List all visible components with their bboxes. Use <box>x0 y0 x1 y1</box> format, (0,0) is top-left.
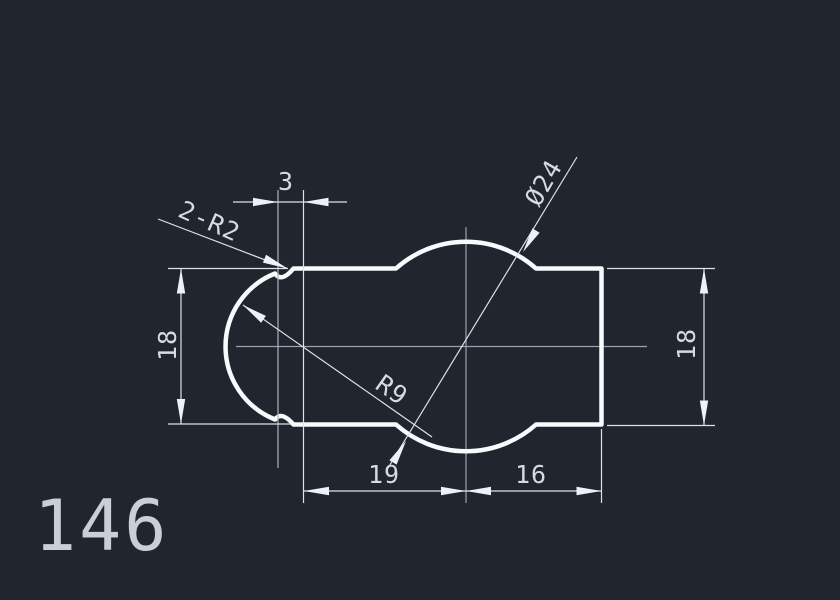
arrowhead <box>389 441 406 465</box>
drawing-number: 146 <box>34 485 169 567</box>
dim-text-top-width: 3 <box>278 167 294 196</box>
arrowhead <box>441 487 466 495</box>
arrowhead <box>177 269 185 294</box>
arrowhead <box>253 198 278 206</box>
arrowhead <box>304 198 329 206</box>
dim-text-fillet: 2-R2 <box>174 195 244 248</box>
dimension-top-3[interactable]: 3 <box>233 167 347 503</box>
leader-line <box>388 157 577 468</box>
arrowhead <box>177 399 185 424</box>
arrowhead <box>243 305 266 323</box>
arrowhead <box>577 487 602 495</box>
dim-text-radius: R9 <box>370 369 413 411</box>
leader-diameter-24[interactable]: Ø24 <box>388 155 577 468</box>
dim-text-bottom-right: 16 <box>515 460 547 489</box>
arrowhead <box>263 255 288 269</box>
arrowhead <box>700 401 708 426</box>
technical-drawing: 3 18 18 19 16 <box>0 0 840 600</box>
arrowhead <box>304 487 329 495</box>
dim-text-right-height: 18 <box>672 328 701 360</box>
dim-text-bottom-left: 19 <box>368 460 400 489</box>
arrowhead <box>700 269 708 294</box>
arrowhead <box>466 487 491 495</box>
dim-text-left-height: 18 <box>153 329 182 361</box>
arrowhead <box>523 228 540 252</box>
cad-model-space[interactable]: 3 18 18 19 16 <box>0 0 840 600</box>
dimension-bottom-19-16[interactable]: 19 16 <box>304 429 602 503</box>
leader-fillet-2r2[interactable]: 2-R2 <box>158 195 288 269</box>
